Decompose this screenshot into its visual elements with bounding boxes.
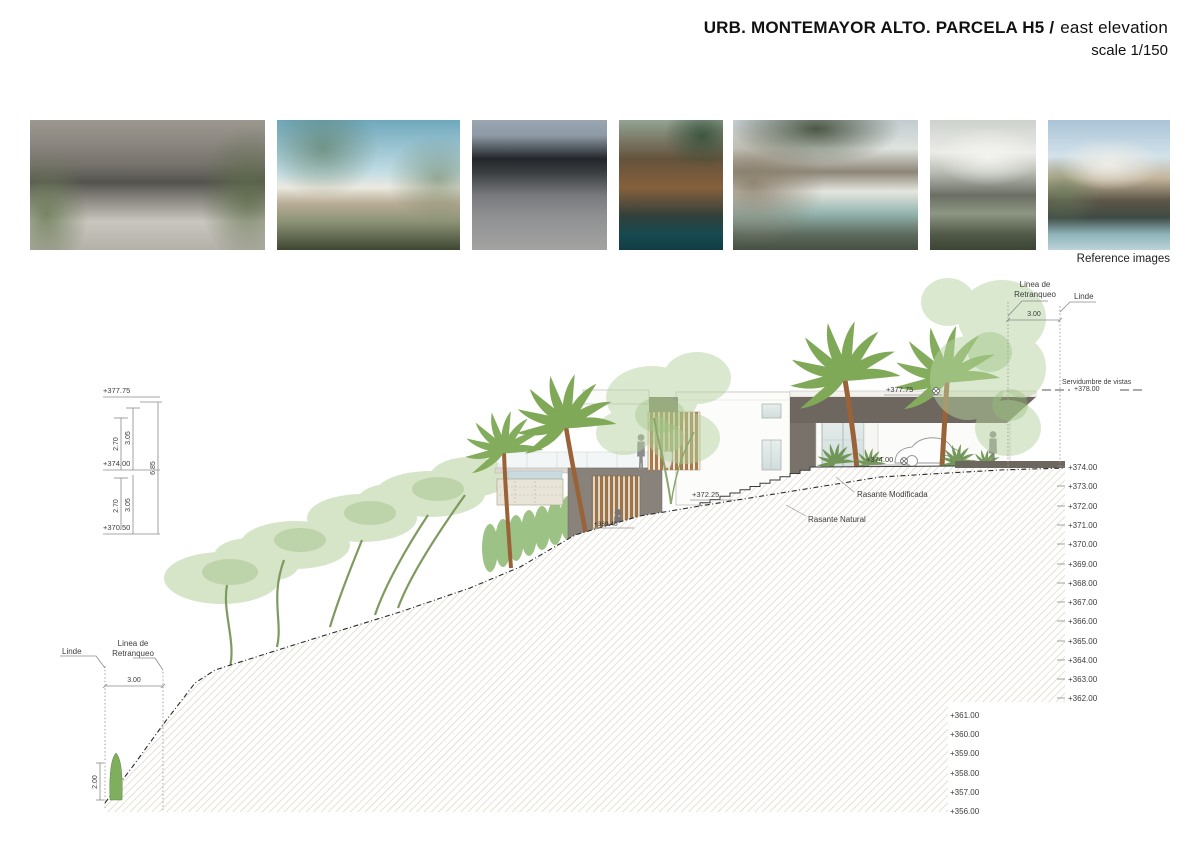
svg-text:Servidumbre de vistas: Servidumbre de vistas (1062, 379, 1132, 386)
svg-text:Linea de: Linea de (118, 639, 149, 648)
svg-text:Linde: Linde (62, 647, 82, 656)
svg-text:+361.00: +361.00 (950, 711, 980, 720)
svg-text:+359.00: +359.00 (950, 749, 980, 758)
svg-text:+367.00: +367.00 (1068, 598, 1098, 607)
svg-text:+365.00: +365.00 (1068, 637, 1098, 646)
svg-text:+363.00: +363.00 (1068, 675, 1098, 684)
pool-section (508, 471, 562, 479)
svg-text:+357.00: +357.00 (950, 788, 980, 797)
svg-text:Linde: Linde (1074, 292, 1094, 301)
svg-text:+358.00: +358.00 (950, 769, 980, 778)
svg-text:6.85: 6.85 (150, 461, 157, 475)
elevation-drawing: +374.00 +373.00 +372.00 +371.00 +370.00 … (0, 0, 1200, 848)
driveway-band (955, 461, 1065, 468)
svg-text:+364.00: +364.00 (1068, 656, 1098, 665)
svg-text:Retranqueo: Retranqueo (112, 649, 154, 658)
level-marker-roof (933, 388, 940, 395)
svg-text:+366.00: +366.00 (1068, 617, 1098, 626)
svg-text:+362.00: +362.00 (1068, 694, 1098, 703)
svg-text:+356.00: +356.00 (950, 807, 980, 816)
svg-text:+377.75: +377.75 (886, 385, 913, 394)
svg-text:2.70: 2.70 (113, 437, 120, 451)
svg-text:3.05: 3.05 (125, 498, 132, 512)
svg-text:+378.00: +378.00 (1074, 386, 1100, 393)
svg-text:3.00: 3.00 (127, 677, 141, 684)
window-tall (762, 440, 781, 470)
svg-text:+374.00: +374.00 (103, 459, 130, 468)
svg-text:2.00: 2.00 (92, 775, 99, 789)
svg-text:+373.00: +373.00 (1068, 482, 1098, 491)
svg-text:+370.50: +370.50 (103, 523, 130, 532)
svg-text:+374.00: +374.00 (1068, 463, 1098, 472)
svg-text:Retranqueo: Retranqueo (1014, 290, 1056, 299)
svg-text:3.00: 3.00 (1027, 311, 1041, 318)
svg-text:+370.00: +370.00 (1068, 540, 1098, 549)
elevation-sheet: URB. MONTEMAYOR ALTO. PARCELA H5 /east e… (0, 0, 1200, 848)
cypress-tree (110, 753, 123, 800)
svg-text:+372.25: +372.25 (692, 490, 719, 499)
svg-text:+371.00: +371.00 (1068, 521, 1098, 530)
svg-text:+377.75: +377.75 (103, 386, 130, 395)
svg-text:+372.00: +372.00 (1068, 502, 1098, 511)
svg-text:+369.00: +369.00 (1068, 560, 1098, 569)
svg-text:Linea de: Linea de (1020, 280, 1051, 289)
level-marker-driveway (901, 458, 908, 465)
svg-text:2.70: 2.70 (113, 499, 120, 513)
svg-text:+369.40: +369.40 (594, 521, 618, 528)
svg-text:+374.00: +374.00 (866, 455, 893, 464)
window-upper (762, 404, 781, 418)
svg-text:3.05: 3.05 (125, 431, 132, 445)
svg-text:+368.00: +368.00 (1068, 579, 1098, 588)
svg-text:Rasante Natural: Rasante Natural (808, 515, 866, 524)
svg-text:Rasante Modificada: Rasante Modificada (857, 490, 928, 499)
svg-text:+360.00: +360.00 (950, 730, 980, 739)
